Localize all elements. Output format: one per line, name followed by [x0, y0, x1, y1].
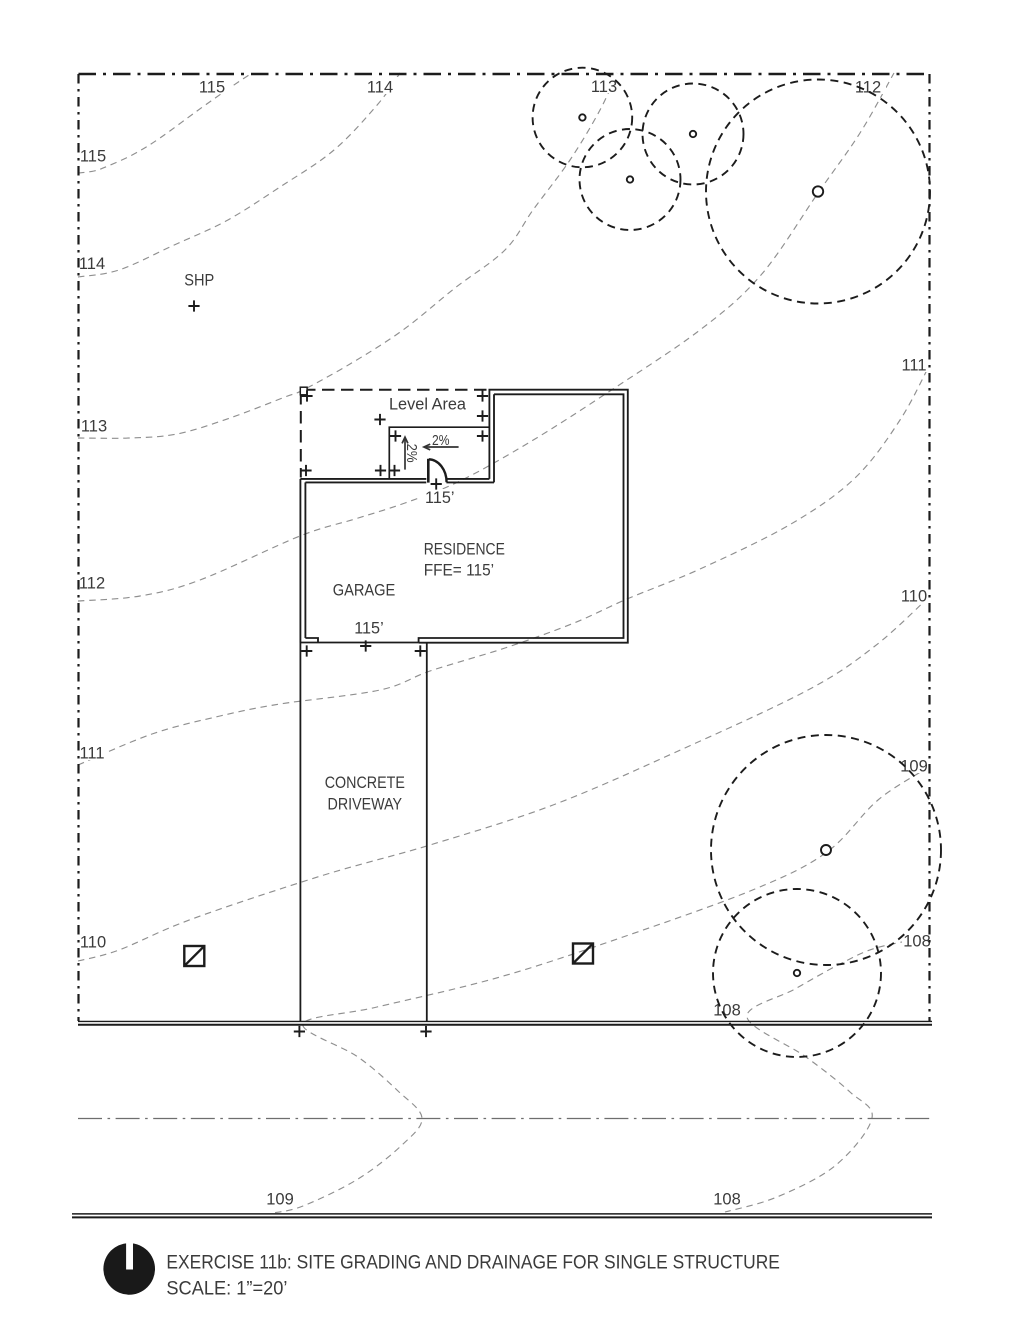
svg-text:113: 113 [81, 418, 107, 436]
svg-text:108: 108 [903, 933, 931, 951]
svg-text:DRIVEWAY: DRIVEWAY [328, 796, 403, 814]
svg-text:114: 114 [79, 255, 105, 273]
svg-text:EXERCISE 11b: SITE GRADING AND: EXERCISE 11b: SITE GRADING AND DRAINAGE … [166, 1252, 780, 1273]
svg-text:111: 111 [901, 357, 926, 375]
svg-text:SHP: SHP [184, 272, 214, 290]
svg-text:SCALE: 1”=20’: SCALE: 1”=20’ [166, 1279, 287, 1300]
svg-text:CONCRETE: CONCRETE [325, 774, 405, 792]
svg-text:Level Area: Level Area [389, 396, 467, 414]
svg-text:115’: 115’ [425, 489, 455, 507]
svg-text:2%: 2% [403, 444, 419, 463]
svg-text:114: 114 [367, 79, 393, 97]
svg-text:115: 115 [199, 79, 225, 97]
svg-text:FFE= 115’: FFE= 115’ [424, 562, 494, 580]
svg-text:108: 108 [713, 1002, 741, 1020]
svg-text:110: 110 [80, 934, 106, 952]
svg-text:GARAGE: GARAGE [333, 582, 396, 600]
svg-text:111: 111 [79, 745, 104, 763]
svg-text:113: 113 [591, 78, 617, 96]
svg-text:115: 115 [80, 148, 106, 166]
svg-text:112: 112 [79, 575, 105, 593]
svg-text:115’: 115’ [354, 620, 384, 638]
svg-text:RESIDENCE: RESIDENCE [424, 541, 505, 559]
svg-text:109: 109 [266, 1191, 294, 1209]
svg-text:2%: 2% [432, 433, 450, 449]
svg-text:108: 108 [713, 1191, 741, 1209]
svg-text:110: 110 [901, 588, 927, 606]
